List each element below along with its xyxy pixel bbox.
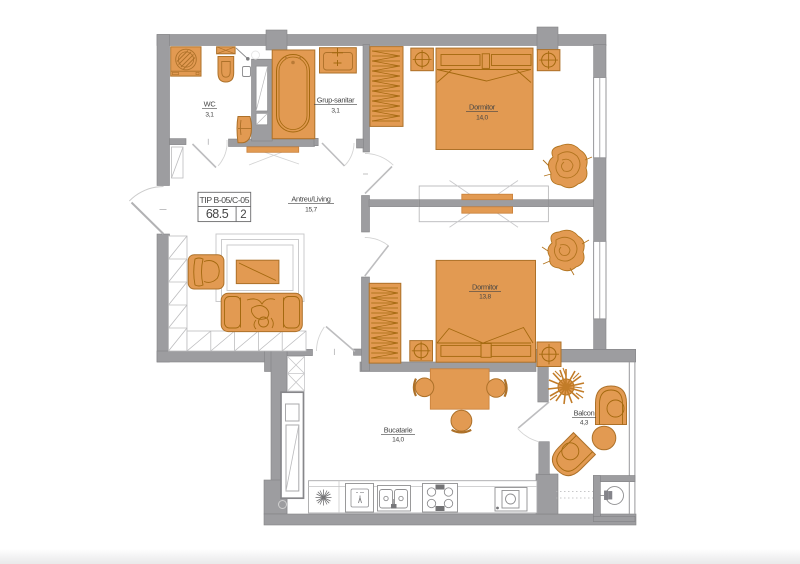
svg-text:Antreu/Living: Antreu/Living <box>291 195 330 204</box>
svg-text:13,8: 13,8 <box>479 294 491 301</box>
svg-text:3,1: 3,1 <box>205 112 214 119</box>
svg-text:Balcon: Balcon <box>574 409 595 418</box>
svg-text:14,0: 14,0 <box>476 115 488 122</box>
svg-text:4,3: 4,3 <box>580 420 589 427</box>
svg-text:WC: WC <box>204 100 217 109</box>
svg-text:68.5: 68.5 <box>206 207 229 221</box>
svg-text:Grup-sanitar: Grup-sanitar <box>317 96 355 105</box>
svg-text:3,1: 3,1 <box>331 108 340 115</box>
svg-text:Bucatarie: Bucatarie <box>384 426 413 435</box>
svg-text:2: 2 <box>240 209 246 221</box>
svg-text:Dormitor: Dormitor <box>469 103 496 112</box>
svg-text:Dormitor: Dormitor <box>472 283 499 292</box>
svg-text:15,7: 15,7 <box>305 207 317 214</box>
svg-text:14,0: 14,0 <box>392 437 404 444</box>
svg-text:TIP B-05/C-05: TIP B-05/C-05 <box>200 195 250 205</box>
